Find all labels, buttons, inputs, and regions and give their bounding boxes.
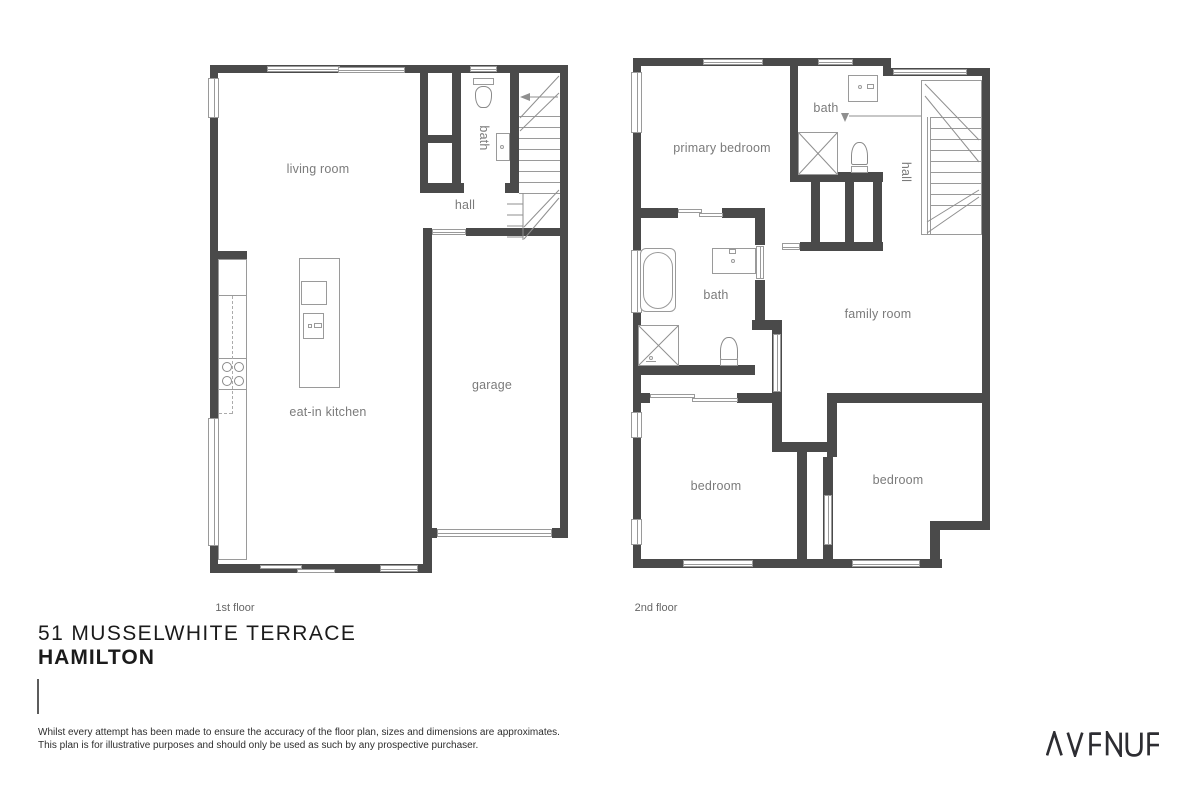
appliance-control — [308, 324, 312, 328]
room-label-bath-ensuite: bath — [813, 101, 838, 115]
wall — [633, 58, 641, 568]
wall — [827, 393, 990, 403]
sink-faucet — [867, 84, 874, 89]
floor-plan-page: living room bath hall eat-in kitchen gar… — [0, 0, 1200, 800]
stair-rail — [930, 117, 931, 235]
door-opening — [782, 243, 800, 250]
room-label-primary-bedroom: primary bedroom — [673, 141, 770, 155]
toilet-bowl — [720, 337, 738, 360]
wall — [737, 393, 782, 403]
room-label-bedroom-left: bedroom — [691, 479, 742, 493]
toilet-tank — [720, 359, 738, 366]
sink-drain — [731, 259, 735, 263]
stair-treads — [519, 116, 560, 194]
window — [208, 78, 219, 118]
sink-drain — [858, 85, 862, 89]
wall — [755, 208, 765, 245]
sliding-door — [699, 213, 723, 217]
window — [852, 560, 920, 567]
divider-tick — [37, 679, 39, 714]
room-label-bedroom-right: bedroom — [873, 473, 924, 487]
wall — [423, 528, 437, 538]
shower-head — [649, 356, 653, 360]
wall — [452, 73, 461, 183]
window — [683, 560, 753, 567]
room-label-hall: hall — [455, 198, 475, 212]
window — [631, 72, 642, 133]
stair-detail-lines — [0, 0, 1200, 800]
wall — [633, 208, 678, 218]
wall — [797, 447, 807, 568]
window — [893, 69, 967, 75]
window — [267, 66, 340, 72]
wall — [752, 320, 782, 330]
sliding-door — [650, 394, 695, 398]
room-label-eat-in-kitchen: eat-in kitchen — [289, 405, 366, 419]
wall — [218, 251, 247, 259]
stair-direction-arrow — [841, 113, 849, 122]
wall — [845, 177, 854, 244]
avenue-logo — [1046, 731, 1160, 762]
room-label-bath: bath — [477, 125, 491, 150]
address-line1: 51 MUSSELWHITE TERRACE — [38, 622, 356, 646]
window — [631, 412, 642, 438]
window — [380, 565, 418, 572]
wall — [420, 135, 461, 143]
stair-treads — [930, 117, 982, 208]
room-label-living-room: living room — [287, 162, 350, 176]
address-line2: HAMILTON — [38, 646, 155, 670]
door-opening — [824, 495, 832, 545]
island-sink — [301, 281, 327, 305]
door-opening — [773, 334, 781, 392]
wall — [755, 280, 765, 325]
wall — [811, 177, 820, 244]
window — [703, 59, 763, 65]
garage-door — [437, 529, 552, 537]
wall — [930, 521, 940, 568]
wall — [423, 228, 432, 573]
appliance-control — [314, 323, 322, 328]
wall — [633, 393, 650, 403]
room-label-garage: garage — [472, 378, 512, 392]
toilet-bowl — [851, 142, 868, 165]
stove-burner — [222, 376, 232, 386]
wall — [827, 395, 837, 457]
bathtub-basin — [643, 252, 673, 309]
avenue-logo-glyphs — [1046, 731, 1160, 757]
floor2-label: 2nd floor — [635, 602, 678, 614]
wall — [552, 528, 567, 538]
stove-burner — [234, 376, 244, 386]
wall — [560, 65, 568, 538]
wall — [420, 73, 428, 183]
window — [818, 59, 853, 65]
sliding-door — [297, 569, 335, 573]
wall — [800, 242, 883, 251]
window — [338, 67, 405, 73]
shower — [638, 325, 679, 366]
wall — [982, 68, 990, 530]
disclaimer-line2: This plan is for illustrative purposes a… — [38, 740, 560, 753]
shower-valve — [646, 361, 656, 362]
stair-direction-arrow — [520, 93, 530, 101]
room-label-bath-main: bath — [703, 288, 728, 302]
toilet-tank — [851, 166, 868, 173]
cabinet-dashed-line — [232, 296, 233, 414]
window — [631, 519, 642, 545]
wall — [790, 66, 798, 177]
room-label-family-room: family room — [845, 307, 912, 321]
disclaimer: Whilst every attempt has been made to en… — [38, 727, 560, 752]
sink-faucet — [729, 249, 736, 254]
wall — [633, 365, 755, 375]
stove-burner — [234, 362, 244, 372]
sliding-door — [260, 565, 302, 569]
sink-drain — [500, 145, 504, 149]
wall — [510, 73, 519, 193]
toilet-tank — [473, 78, 494, 85]
door-opening — [756, 246, 764, 279]
door-opening — [432, 229, 466, 235]
wall — [873, 177, 882, 244]
room-label-hall: hall — [899, 162, 913, 182]
floor1-label: 1st floor — [215, 602, 254, 614]
stove-burner — [222, 362, 232, 372]
wall — [420, 183, 464, 193]
disclaimer-line1: Whilst every attempt has been made to en… — [38, 727, 560, 740]
wall — [466, 228, 568, 236]
window — [470, 66, 497, 72]
stair-rail — [927, 117, 928, 235]
shower — [798, 132, 838, 175]
sliding-door — [692, 398, 738, 402]
cabinet-dashed-line — [219, 413, 232, 414]
toilet-bowl — [475, 86, 492, 108]
